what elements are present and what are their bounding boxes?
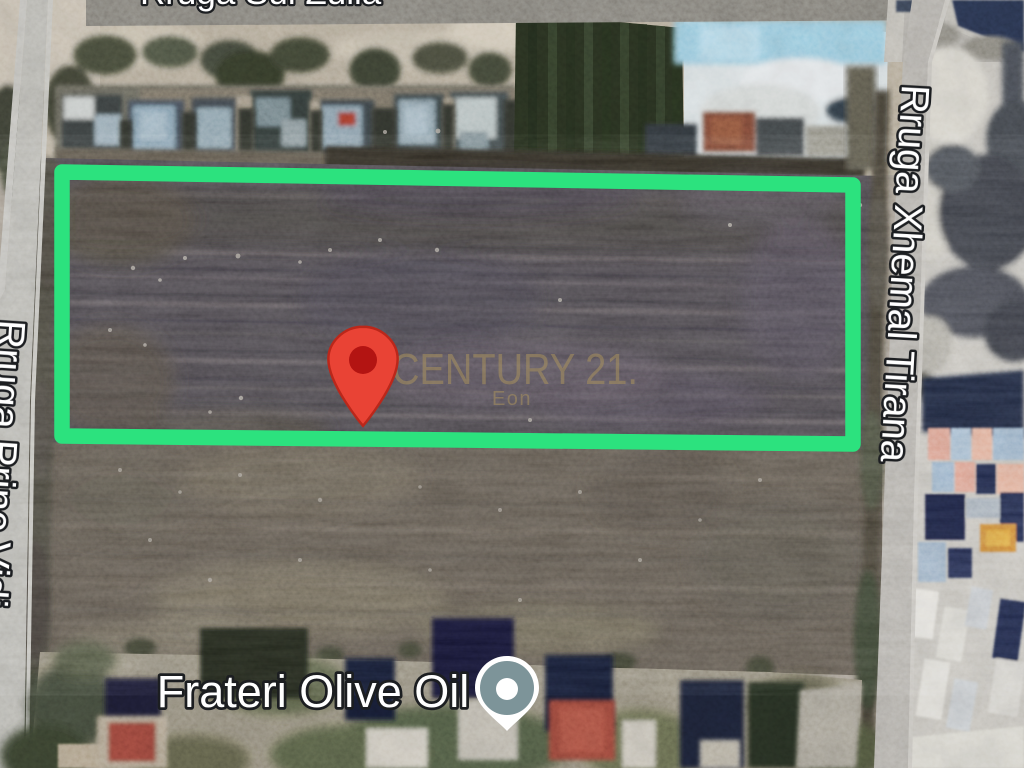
svg-text:Frateri Olive Oil: Frateri Olive Oil <box>157 666 470 717</box>
svg-text:Rruga Sul Zulla: Rruga Sul Zulla <box>140 0 382 12</box>
svg-text:CENTURY 21.: CENTURY 21. <box>392 345 638 394</box>
svg-text:Eon: Eon <box>492 388 532 410</box>
